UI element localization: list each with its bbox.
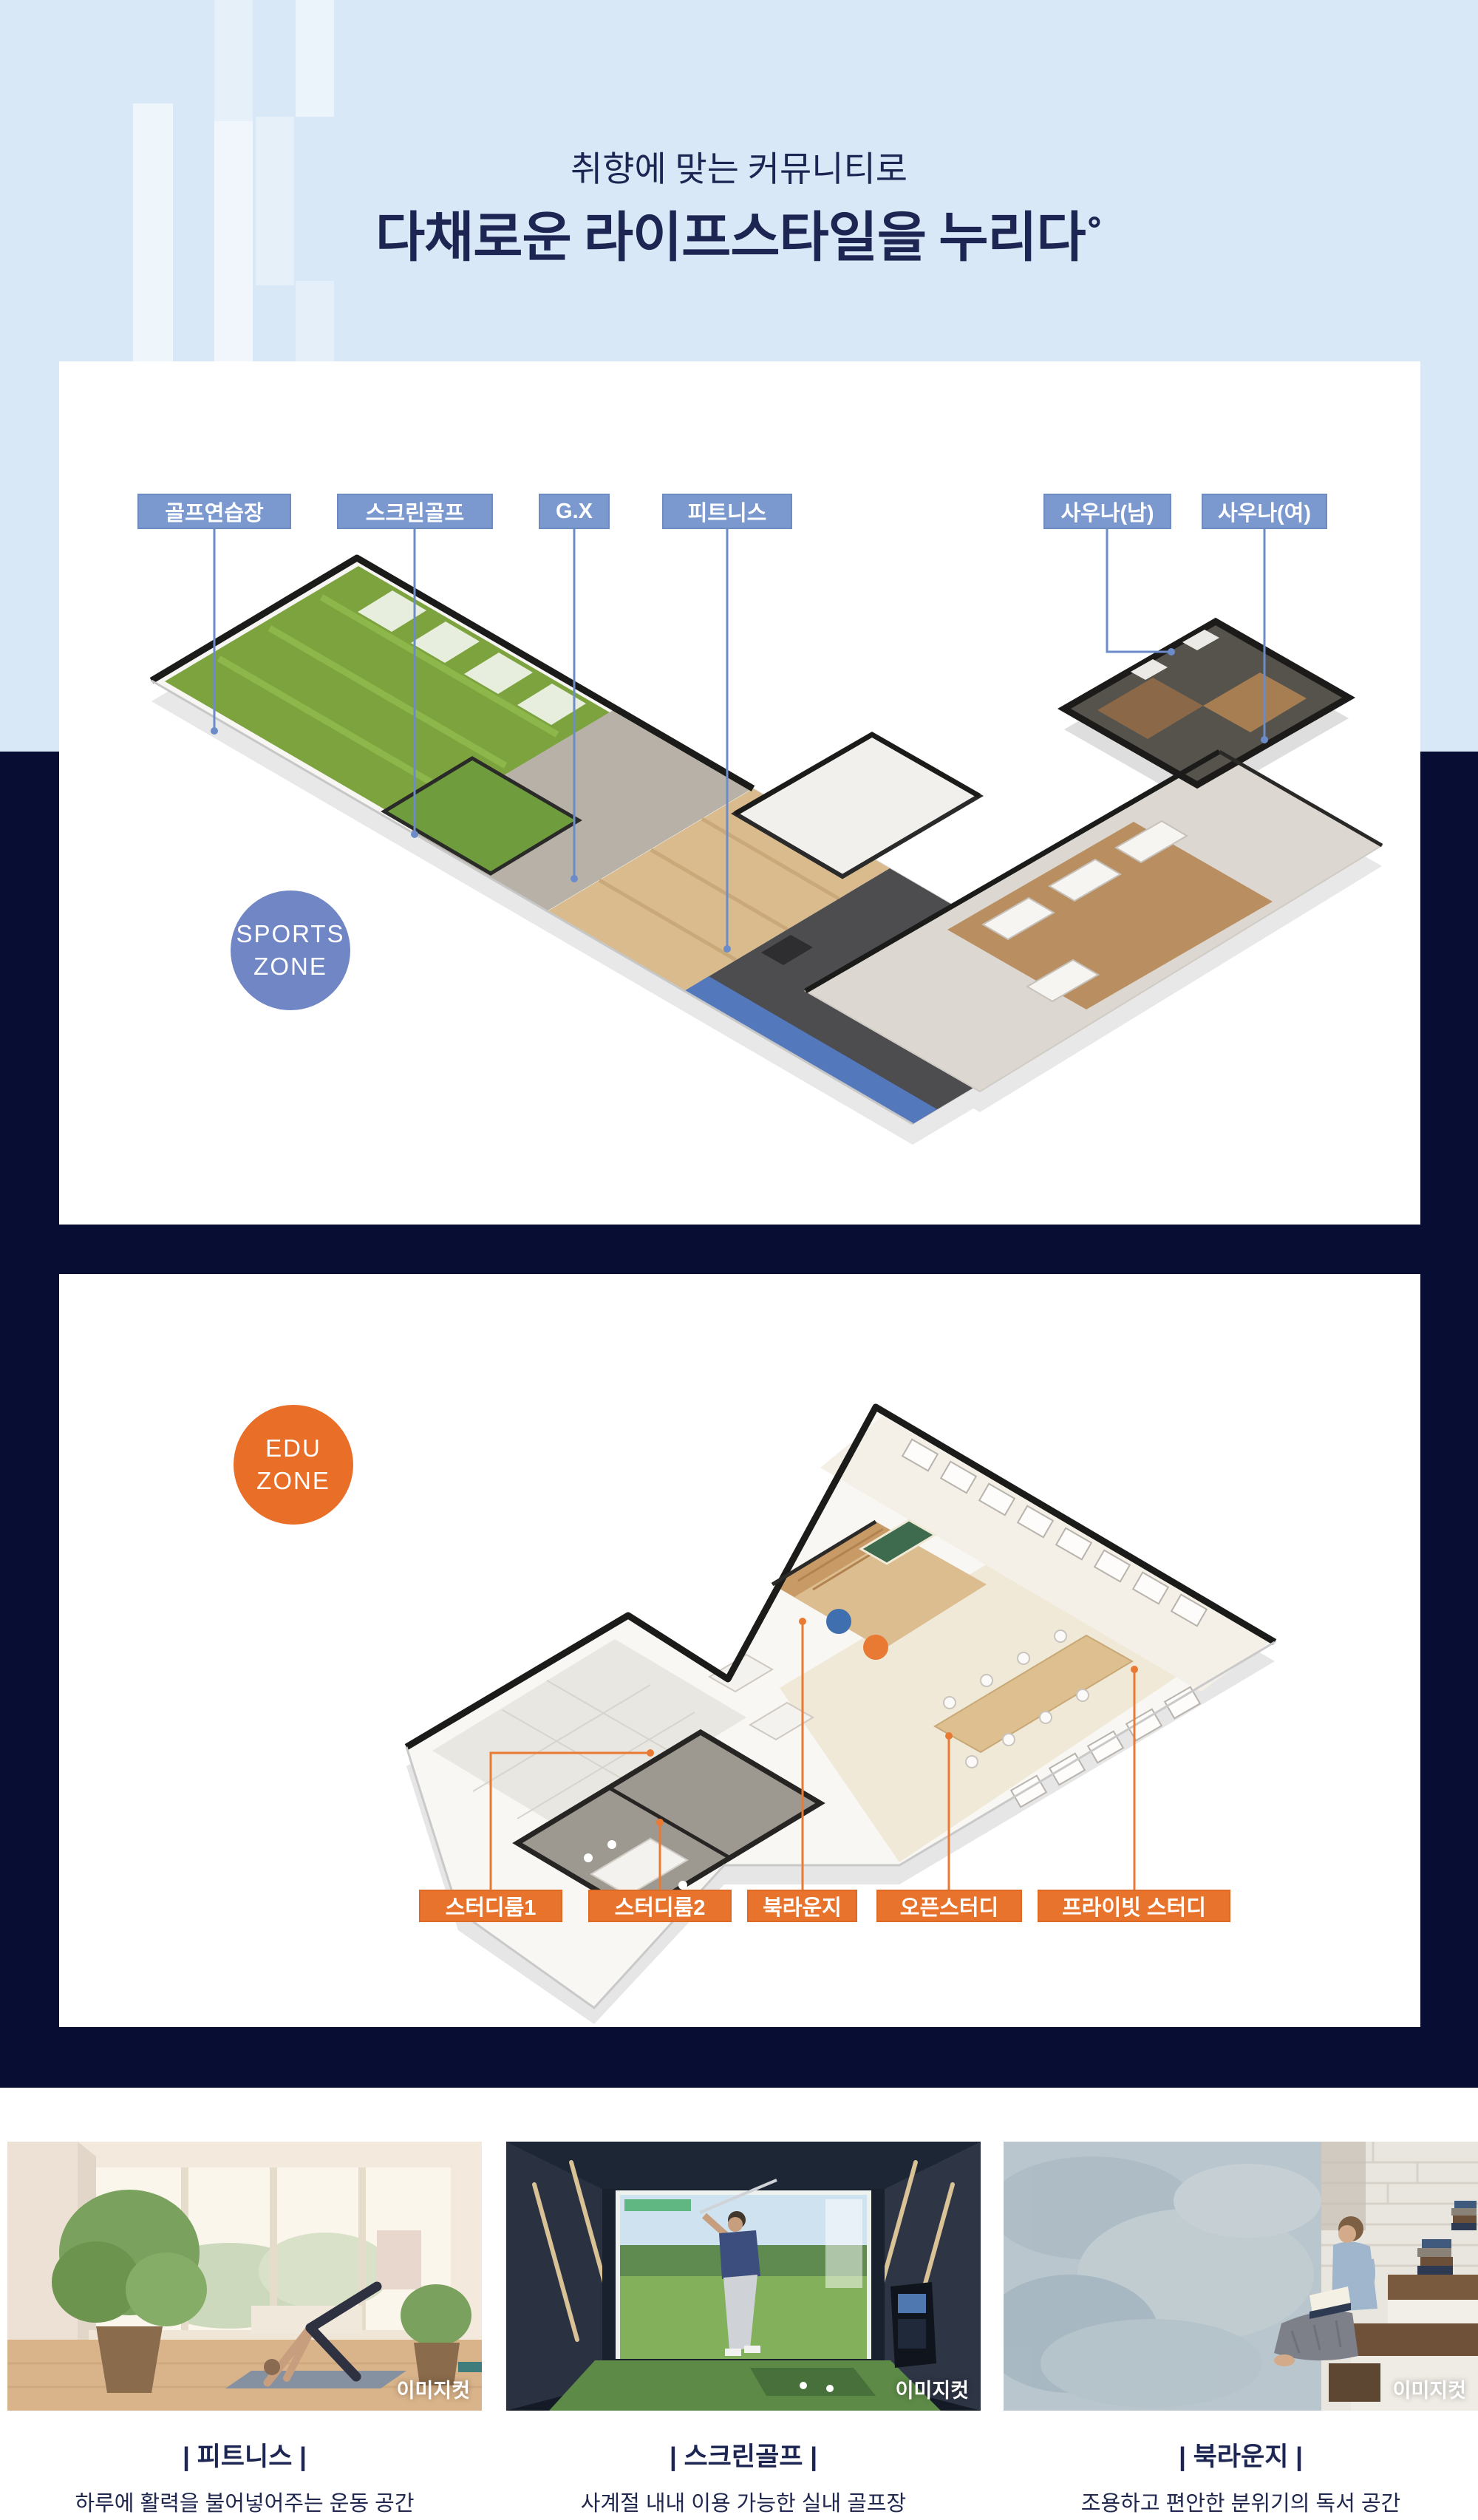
book-lounge-photo: 이미지컷: [1004, 2142, 1478, 2411]
watermark-text: 이미지컷: [1393, 2374, 1466, 2403]
book-lounge-photo-illustration: [1004, 2142, 1478, 2411]
screen-golf-photo-illustration: [506, 2142, 981, 2411]
page-subtitle: 취향에 맞는 커뮤니티로: [0, 140, 1478, 191]
page-title: 다채로운 라이프스타일을 누리다˚: [0, 194, 1478, 272]
screen-golf-description: 사계절 내내 이용 가능한 실내 골프장: [506, 2486, 981, 2517]
label-sauna-men: 사우나(남): [1043, 494, 1171, 529]
watermark-text: 이미지컷: [896, 2374, 969, 2403]
sports-zone-badge-line1: SPORTS: [236, 918, 344, 950]
edu-zone-card: 스터디룸1 스터디룸2 북라운지 오픈스터디 프라이빗 스터디 EDU ZONE: [59, 1274, 1420, 2027]
label-screen-golf: 스크린골프: [337, 494, 493, 529]
label-study-room-1: 스터디룸1: [419, 1890, 562, 1922]
sports-zone-badge: SPORTS ZONE: [231, 890, 350, 1010]
label-fitness: 피트니스: [662, 494, 792, 529]
screen-golf-photo: 이미지컷: [506, 2142, 981, 2411]
book-lounge-caption: | 북라운지 |: [1004, 2436, 1478, 2473]
label-golf-practice: 골프연습장: [137, 494, 291, 529]
label-sauna-women: 사우나(여): [1202, 494, 1327, 529]
edu-zone-badge: EDU ZONE: [234, 1405, 353, 1525]
label-gx: G.X: [539, 494, 610, 529]
edu-zone-badge-line1: EDU: [265, 1432, 321, 1465]
watermark-text: 이미지컷: [397, 2374, 470, 2403]
decor-bar: [214, 0, 253, 121]
book-lounge-description: 조용하고 편안한 분위기의 독서 공간: [1004, 2486, 1478, 2517]
label-study-room-2: 스터디룸2: [588, 1890, 732, 1922]
label-private-study: 프라이빗 스터디: [1038, 1890, 1230, 1922]
fitness-caption: | 피트니스 |: [7, 2436, 482, 2473]
fitness-photo: 이미지컷: [7, 2142, 482, 2411]
decor-bar: [296, 0, 334, 117]
label-open-study: 오픈스터디: [876, 1890, 1022, 1922]
decor-bar: [296, 281, 334, 362]
sports-zone-card: 골프연습장 스크린골프 G.X 피트니스 사우나(남) 사우나(여) SPORT…: [59, 361, 1420, 1225]
fitness-description: 하루에 활력을 불어넣어주는 운동 공간: [7, 2486, 482, 2517]
label-book-lounge: 북라운지: [747, 1890, 857, 1922]
fitness-photo-illustration: [7, 2142, 482, 2411]
screen-golf-caption: | 스크린골프 |: [506, 2436, 981, 2473]
sports-zone-badge-line2: ZONE: [253, 950, 327, 983]
sports-zone-floorplan: [59, 361, 1420, 1225]
edu-zone-badge-line2: ZONE: [256, 1465, 330, 1497]
